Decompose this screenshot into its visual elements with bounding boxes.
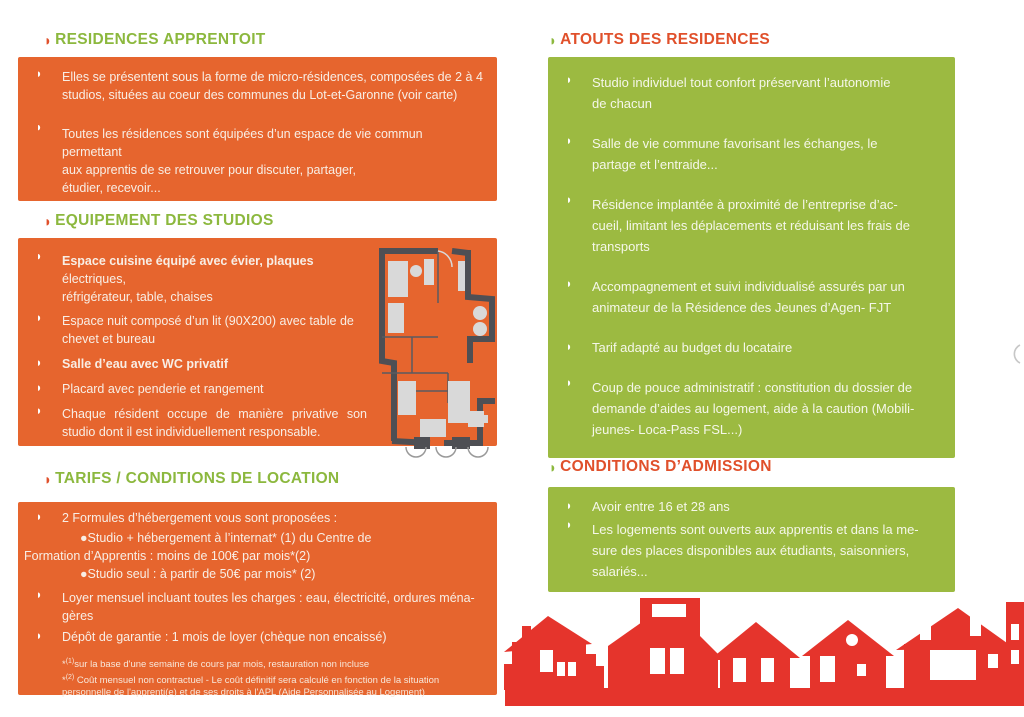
list-item-text: Loyer mensuel incluant toutes les charge…	[62, 589, 483, 625]
bullet-icon: ◗	[36, 353, 62, 375]
footnote: *(2) Coût mensuel non contractuel - Le c…	[62, 672, 483, 700]
bullet-icon: ◗	[36, 378, 62, 400]
conditions-info-panel: ◗ Avoir entre 16 et 28 ans ◗ Les logemen…	[548, 487, 955, 592]
bullet-icon: ◗	[566, 188, 592, 264]
section-title-text: RESIDENCES APPRENTOIT	[55, 31, 265, 49]
list-item-text-rest: électriques, réfrigérateur, table, chais…	[62, 272, 213, 304]
bullet-icon: ◗	[566, 129, 592, 179]
section-title-text: CONDITIONS D’ADMISSION	[560, 458, 772, 476]
arrow-bullet-icon: ◗	[549, 33, 557, 48]
bullet-icon: ◗	[36, 64, 62, 107]
bullet-icon: ◗	[36, 247, 62, 312]
list-item-text: Chaque résident occupe de manière privat…	[62, 405, 367, 441]
list-item-text: Les logements sont ouverts aux apprentis…	[592, 519, 941, 582]
bullet-icon: ◗	[566, 513, 592, 589]
list-item-text: Résidence implantée à proximité de l’ent…	[592, 194, 941, 257]
section-title-text: EQUIPEMENT DES STUDIOS	[55, 212, 273, 230]
bullet-icon: ◗	[36, 626, 62, 648]
atouts-info-panel: ◗ Studio individuel tout confort préserv…	[548, 57, 955, 458]
section-title-residences: ◗ RESIDENCES APPRENTOIT	[44, 31, 266, 49]
list-item-text: Placard avec penderie et rangement	[62, 380, 367, 398]
list-item-text-bold: Espace cuisine équipé avec évier, plaque…	[62, 254, 314, 268]
footnote-sup: (2)	[66, 674, 75, 681]
section-title-text: ATOUTS DES RESIDENCES	[560, 31, 770, 49]
footnote: *(1)sur la base d'une semaine de cours p…	[62, 656, 483, 672]
list-item-text: Coup de pouce administratif : constituti…	[592, 377, 941, 440]
arrow-bullet-icon: ◗	[549, 460, 557, 475]
list-item: ◗ Dépôt de garantie : 1 mois de loyer (c…	[18, 628, 497, 646]
list-item: ◗ Avoir entre 16 et 28 ans	[548, 496, 955, 517]
footnote-sup: (1)	[66, 658, 75, 665]
list-item: ◗ Accompagnement et suivi individualisé …	[548, 276, 955, 318]
bullet-icon: ◗	[566, 68, 592, 118]
bullet-icon: ◗	[566, 371, 592, 447]
footnote-text: sur la base d'une semaine de cours par m…	[74, 659, 369, 670]
section-title-tarifs: ◗ TARIFS / CONDITIONS DE LOCATION	[44, 470, 339, 488]
bullet-icon: ◗	[566, 272, 592, 322]
arrow-bullet-icon: ◗	[44, 33, 52, 48]
footnotes: *(1)sur la base d'une semaine de cours p…	[62, 656, 483, 700]
red-houses-silhouette-illustration	[500, 592, 1024, 712]
list-item: ◗ Studio individuel tout confort préserv…	[548, 72, 955, 114]
pricing-option-line: ●Studio seul : à partir de 50€ par mois*…	[18, 565, 497, 583]
section-title-text: TARIFS / CONDITIONS DE LOCATION	[55, 470, 339, 488]
list-item-text: Dépôt de garantie : 1 mois de loyer (chè…	[62, 628, 483, 646]
list-item-text: Tarif adapté au budget du locataire	[592, 337, 941, 358]
arrow-bullet-icon: ◗	[44, 214, 52, 229]
section-title-equipement: ◗ EQUIPEMENT DES STUDIOS	[44, 212, 274, 230]
bullet-icon: ◗	[36, 507, 62, 529]
list-item: ◗ Toutes les résidences sont équipées d’…	[18, 125, 497, 197]
bullet-icon: ◗	[36, 308, 62, 351]
bullet-icon: ◗	[36, 401, 62, 444]
footnote-text: Coût mensuel non contractuel - Le coût d…	[62, 675, 439, 699]
studio-floor-plan-illustration	[352, 241, 498, 459]
list-item-text: Avoir entre 16 et 28 ans	[592, 496, 941, 517]
list-item: ◗ Les logements sont ouverts aux apprent…	[548, 519, 955, 582]
list-item: ◗ 2 Formules d’hébergement vous sont pro…	[18, 509, 497, 527]
list-item: ◗ Résidence implantée à proximité de l’e…	[548, 194, 955, 257]
staple-mark-icon	[1008, 343, 1024, 365]
bullet-icon: ◗	[36, 118, 62, 204]
section-title-atouts: ◗ ATOUTS DES RESIDENCES	[549, 31, 770, 49]
list-item-text: Elles se présentent sous la forme de mic…	[62, 68, 483, 104]
bullet-icon: ◗	[36, 585, 62, 628]
list-item: ◗ Tarif adapté au budget du locataire	[548, 337, 955, 358]
list-item-text: Toutes les résidences sont équipées d’un…	[62, 125, 483, 197]
pricing-option-line: ●Studio + hébergement à l’internat* (1) …	[18, 529, 497, 547]
bullet-icon: ◗	[566, 335, 592, 360]
tarifs-info-panel: ◗ 2 Formules d’hébergement vous sont pro…	[18, 502, 497, 695]
list-item-text: Salle de vie commune favorisant les écha…	[592, 133, 941, 175]
list-item: ◗ Loyer mensuel incluant toutes les char…	[18, 589, 497, 625]
residences-info-panel: ◗ Elles se présentent sous la forme de m…	[18, 57, 497, 201]
list-item-text: 2 Formules d’hébergement vous sont propo…	[62, 509, 483, 527]
list-item-text: Salle d’eau avec WC privatif	[62, 355, 367, 373]
list-item-text: Espace nuit composé d’un lit (90X200) av…	[62, 312, 367, 348]
list-item: ◗ Elles se présentent sous la forme de m…	[18, 68, 497, 104]
list-item-text: Accompagnement et suivi individualisé as…	[592, 276, 941, 318]
section-title-conditions: ◗ CONDITIONS D’ADMISSION	[549, 458, 772, 476]
list-item: ◗ Coup de pouce administratif : constitu…	[548, 377, 955, 440]
list-item-text: Espace cuisine équipé avec évier, plaque…	[62, 252, 367, 306]
pricing-option-line: Formation d’Apprentis : moins de 100€ pa…	[18, 547, 497, 565]
list-item: ◗ Salle de vie commune favorisant les éc…	[548, 133, 955, 175]
list-item-text: Studio individuel tout confort préservan…	[592, 72, 941, 114]
arrow-bullet-icon: ◗	[44, 472, 52, 487]
